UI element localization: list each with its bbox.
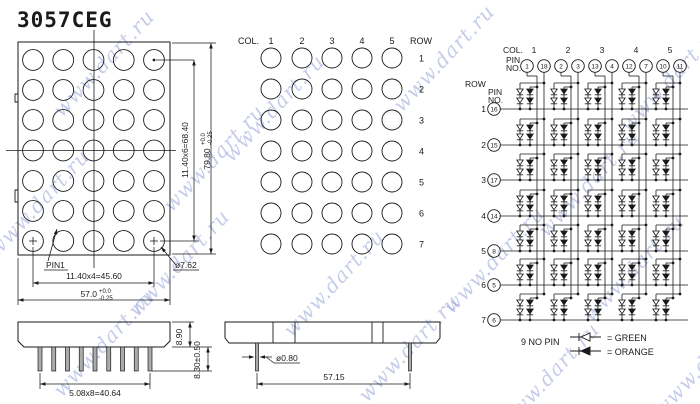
arrowhead: [192, 236, 196, 242]
junction-dot: [536, 262, 539, 265]
led-dot-circle: [382, 141, 402, 161]
green-led-diode-icon: [653, 265, 659, 270]
orange-led-diode-icon: [527, 274, 533, 279]
orange-led-diode-icon: [561, 240, 567, 245]
row-pin-number: 14: [490, 214, 498, 221]
junction-dot: [519, 144, 522, 147]
orange-led-diode-icon: [561, 125, 567, 130]
junction-dot: [655, 250, 658, 253]
junction-dot: [529, 250, 532, 253]
junction-dot: [665, 215, 668, 218]
no-pin-note: 9 NO PIN: [521, 337, 560, 347]
junction-dot: [655, 144, 658, 147]
junction-dot: [519, 215, 522, 218]
arrowhead: [18, 298, 24, 302]
lead-pin: [121, 347, 125, 371]
orange-led-diode-icon: [629, 309, 635, 314]
junction-dot: [519, 108, 522, 111]
green-led-diode-icon: [517, 240, 523, 245]
junction-dot: [570, 86, 573, 89]
junction-dot: [679, 118, 682, 121]
junction-dot: [587, 215, 590, 218]
green-led-diode-icon: [517, 169, 523, 174]
row-pin-number: 6: [492, 318, 496, 325]
led-dot-circle: [83, 201, 104, 222]
col-pin-number: 3: [576, 64, 580, 71]
orange-led-diode-icon: [595, 309, 601, 314]
junction-dot: [631, 108, 634, 111]
junction-dot: [621, 179, 624, 182]
orange-led-diode-icon: [663, 160, 669, 165]
orange-led-diode-icon: [663, 274, 669, 279]
front-face-dimensions: 11.40x6=68.40 79.80 +0.0 -0.25 PIN1 ø7.6…: [46, 122, 214, 302]
led-dot-circle: [83, 231, 104, 252]
row-number: 4: [481, 211, 486, 221]
row-number: 1: [419, 54, 424, 64]
green-led-diode-icon: [517, 205, 523, 210]
orange-led-diode-icon: [527, 231, 533, 236]
orange-led-diode-icon: [527, 240, 533, 245]
lead-pin: [148, 347, 152, 371]
svg-text:-0.25: -0.25: [99, 296, 113, 302]
green-led-diode-icon: [653, 240, 659, 245]
orange-led-diode-icon: [629, 196, 635, 201]
orange-led-diode-icon: [595, 205, 601, 210]
junction-dot: [611, 82, 614, 85]
lead-pin: [256, 343, 259, 371]
junction-dot: [655, 284, 658, 287]
led-dot-circle: [322, 141, 342, 161]
junction-dot: [679, 82, 682, 85]
junction-dot: [153, 59, 156, 62]
green-led-diode-icon: [517, 98, 523, 103]
green-led-diode-icon: [551, 160, 557, 165]
orange-led-diode-icon: [595, 169, 601, 174]
led-dot-circle: [113, 80, 134, 101]
green-led-diode-icon: [619, 169, 625, 174]
green-led-diode-icon: [619, 160, 625, 165]
junction-dot: [597, 144, 600, 147]
junction-dot: [621, 250, 624, 253]
led-dot-circle: [352, 48, 372, 68]
orange-led-diode-icon: [629, 205, 635, 210]
arrowhead: [260, 355, 266, 359]
row-number: 3: [419, 116, 424, 126]
led-dot-circle: [292, 203, 312, 223]
junction-dot: [543, 224, 546, 227]
led-dot-circle: [382, 79, 402, 99]
orange-led-diode-icon: [663, 300, 669, 305]
orange-led-diode-icon: [663, 231, 669, 236]
green-led-diode-icon: [517, 160, 523, 165]
green-led-diode-icon: [517, 265, 523, 270]
orange-led-diode-icon: [629, 98, 635, 103]
junction-dot: [553, 284, 556, 287]
junction-dot: [665, 319, 668, 322]
arrowhead: [40, 382, 46, 386]
junction-dot: [597, 284, 600, 287]
led-dot-circle: [322, 234, 342, 254]
green-led-diode-icon: [517, 196, 523, 201]
led-dot-circle: [53, 171, 74, 192]
junction-dot: [536, 122, 539, 125]
row-number: 5: [481, 246, 486, 256]
junction-dot: [604, 297, 607, 300]
green-led-diode-icon: [653, 169, 659, 174]
legend-orange-diode-icon: [581, 347, 590, 355]
green-led-diode-icon: [653, 125, 659, 130]
junction-dot: [563, 108, 566, 111]
orange-led-diode-icon: [527, 98, 533, 103]
lead-pin: [409, 343, 412, 371]
green-led-diode-icon: [551, 300, 557, 305]
lead-pin: [107, 347, 111, 371]
led-dot-circle: [382, 234, 402, 254]
green-led-diode-icon: [585, 98, 591, 103]
dot-matrix-headers: COL. ROW: [238, 36, 433, 46]
junction-dot: [611, 118, 614, 121]
col-number: 3: [600, 45, 605, 55]
pin-diameter-label: ø0.80: [276, 353, 298, 363]
green-led-diode-icon: [619, 265, 625, 270]
svg-text:-0.25: -0.25: [208, 131, 214, 145]
orange-led-diode-icon: [663, 98, 669, 103]
junction-dot: [638, 122, 641, 125]
orange-led-diode-icon: [561, 205, 567, 210]
col-number: 4: [634, 45, 639, 55]
junction-dot: [611, 153, 614, 156]
arrowhead: [257, 382, 263, 386]
arrowhead: [206, 366, 210, 372]
row-pin-number: 16: [490, 107, 498, 114]
led-dot-circle: [23, 80, 44, 101]
junction-dot: [577, 82, 580, 85]
arrowhead: [33, 281, 39, 285]
pin1-label: PIN1: [46, 260, 65, 270]
green-led-diode-icon: [551, 169, 557, 174]
led-dot-circle: [23, 110, 44, 131]
arrowhead: [188, 322, 192, 328]
led-dot-circle: [261, 203, 281, 223]
junction-dot: [638, 86, 641, 89]
orange-led-diode-icon: [527, 309, 533, 314]
led-dot-circle: [292, 172, 312, 192]
led-dot-circle: [322, 110, 342, 130]
orange-led-diode-icon: [663, 265, 669, 270]
junction-dot: [553, 179, 556, 182]
orange-led-diode-icon: [595, 300, 601, 305]
orange-led-diode-icon: [629, 89, 635, 94]
green-led-diode-icon: [517, 300, 523, 305]
schematic-col-header: COL.: [503, 45, 523, 55]
arrowhead: [206, 347, 210, 353]
lead-pin: [52, 347, 56, 371]
junction-dot: [611, 224, 614, 227]
col-pin-number: 7: [644, 64, 648, 71]
orange-led-diode-icon: [561, 265, 567, 270]
green-led-diode-icon: [653, 98, 659, 103]
led-dot-circle: [261, 48, 281, 68]
led-dot-circle: [144, 171, 165, 192]
junction-dot: [577, 293, 580, 296]
junction-dot: [529, 215, 532, 218]
junction-dot: [553, 319, 556, 322]
green-led-diode-icon: [653, 196, 659, 201]
arrowhead: [209, 43, 213, 49]
junction-dot: [655, 319, 658, 322]
led-dot-circle: [292, 79, 312, 99]
green-led-diode-icon: [653, 134, 659, 139]
green-led-diode-icon: [517, 134, 523, 139]
junction-dot: [611, 293, 614, 296]
junction-dot: [655, 179, 658, 182]
green-led-diode-icon: [551, 309, 557, 314]
junction-dot: [638, 228, 641, 231]
junction-dot: [553, 215, 556, 218]
junction-dot: [604, 262, 607, 265]
junction-dot: [631, 319, 634, 322]
svg-text:79.80: 79.80: [202, 148, 212, 170]
green-led-diode-icon: [585, 196, 591, 201]
row-number: 7: [419, 240, 424, 250]
junction-dot: [655, 215, 658, 218]
led-dot-circle: [113, 171, 134, 192]
orange-led-diode-icon: [629, 300, 635, 305]
green-led-diode-icon: [551, 240, 557, 245]
junction-dot: [536, 193, 539, 196]
orange-led-diode-icon: [663, 134, 669, 139]
schematic-labels: COL. PIN NO. ROW PIN NO. 9 NO PIN = GREE…: [465, 45, 654, 357]
led-dot-circle: [23, 171, 44, 192]
orange-led-diode-icon: [561, 169, 567, 174]
junction-dot: [587, 144, 590, 147]
orange-led-diode-icon: [527, 205, 533, 210]
orange-led-diode-icon: [663, 125, 669, 130]
junction-dot: [587, 179, 590, 182]
green-led-diode-icon: [585, 274, 591, 279]
junction-dot: [638, 297, 641, 300]
arrowhead: [54, 229, 57, 235]
green-led-diode-icon: [585, 309, 591, 314]
col-header: COL.: [238, 36, 259, 46]
junction-dot: [543, 153, 546, 156]
green-led-diode-icon: [619, 196, 625, 201]
junction-dot: [519, 250, 522, 253]
junction-dot: [604, 228, 607, 231]
col-pin-number: 12: [625, 64, 633, 71]
junction-dot: [563, 179, 566, 182]
junction-dot: [645, 258, 648, 261]
legend-orange-label: = ORANGE: [607, 347, 654, 357]
row-number: 5: [419, 178, 424, 188]
col-pin-number: 10: [659, 64, 667, 71]
junction-dot: [645, 293, 648, 296]
led-dot-circle: [322, 203, 342, 223]
green-led-diode-icon: [585, 125, 591, 130]
led-dot-circle: [83, 80, 104, 101]
lead-pin: [93, 347, 97, 371]
green-led-diode-icon: [653, 300, 659, 305]
junction-dot: [570, 297, 573, 300]
green-led-diode-icon: [653, 309, 659, 314]
junction-dot: [597, 319, 600, 322]
lead-pin: [38, 347, 42, 371]
svg-text:57.0: 57.0: [80, 289, 97, 299]
orange-led-diode-icon: [527, 265, 533, 270]
green-led-diode-icon: [585, 89, 591, 94]
orange-led-diode-icon: [663, 169, 669, 174]
orange-led-diode-icon: [595, 125, 601, 130]
dot-matrix-diagram: 123451234567: [261, 36, 424, 254]
green-led-diode-icon: [551, 134, 557, 139]
arrowhead: [149, 281, 155, 285]
junction-dot: [604, 86, 607, 89]
green-led-diode-icon: [619, 205, 625, 210]
led-dot-circle: [352, 141, 372, 161]
dim-pin-length: 8.30±0.50: [192, 341, 202, 379]
col-number: 1: [532, 45, 537, 55]
datasheet-page: www.dart.ruwww.dart.ruwww.dart.ruwww.dar…: [0, 0, 700, 404]
junction-dot: [679, 224, 682, 227]
col-pin-number: 13: [591, 64, 599, 71]
green-led-diode-icon: [619, 231, 625, 236]
green-led-diode-icon: [551, 125, 557, 130]
orange-led-diode-icon: [663, 309, 669, 314]
green-led-diode-icon: [551, 98, 557, 103]
orange-led-diode-icon: [527, 160, 533, 165]
junction-dot: [577, 118, 580, 121]
side-view-dimensions: ø0.80 57.15: [276, 353, 345, 382]
junction-dot: [638, 262, 641, 265]
orange-led-diode-icon: [595, 134, 601, 139]
junction-dot: [645, 118, 648, 121]
green-led-diode-icon: [653, 89, 659, 94]
orange-led-diode-icon: [561, 160, 567, 165]
led-dot-circle: [113, 201, 134, 222]
led-dot-circle: [322, 79, 342, 99]
part-number: 3057CEG: [17, 8, 113, 32]
lead-pin: [79, 347, 83, 371]
led-dot-circle: [53, 110, 74, 131]
led-dot-circle: [53, 50, 74, 71]
row-header: ROW: [410, 36, 433, 46]
junction-dot: [631, 144, 634, 147]
junction-dot: [665, 284, 668, 287]
junction-dot: [611, 189, 614, 192]
junction-dot: [570, 157, 573, 160]
led-dot-circle: [382, 110, 402, 130]
green-led-diode-icon: [619, 240, 625, 245]
led-dot-circle: [261, 141, 281, 161]
junction-dot: [672, 193, 675, 196]
green-led-diode-icon: [619, 125, 625, 130]
row-number: 7: [481, 315, 486, 325]
led-dot-circle: [83, 171, 104, 192]
row-number: 2: [481, 140, 486, 150]
row-number: 1: [481, 104, 486, 114]
row-pin-number: 17: [490, 178, 498, 185]
led-dot-circle: [292, 48, 312, 68]
arrowhead: [145, 382, 151, 386]
led-dot-circle: [292, 234, 312, 254]
dim-col-pitch: 11.40x4=45.60: [66, 271, 122, 281]
col-number: 2: [299, 36, 304, 46]
junction-dot: [621, 319, 624, 322]
junction-dot: [665, 108, 668, 111]
orange-led-diode-icon: [527, 196, 533, 201]
arrowhead: [192, 60, 196, 66]
junction-dot: [543, 189, 546, 192]
green-led-diode-icon: [517, 309, 523, 314]
orange-led-diode-icon: [561, 196, 567, 201]
green-led-diode-icon: [619, 300, 625, 305]
orange-led-diode-icon: [595, 98, 601, 103]
junction-dot: [645, 153, 648, 156]
green-led-diode-icon: [585, 205, 591, 210]
junction-dot: [597, 250, 600, 253]
green-led-diode-icon: [585, 240, 591, 245]
junction-dot: [529, 144, 532, 147]
green-led-diode-icon: [551, 265, 557, 270]
junction-dot: [631, 215, 634, 218]
led-dot-circle: [23, 201, 44, 222]
orange-led-diode-icon: [595, 265, 601, 270]
row-number: 6: [419, 209, 424, 219]
dim-pin-span: 57.15: [323, 372, 345, 382]
orange-led-diode-icon: [527, 134, 533, 139]
orange-led-diode-icon: [663, 196, 669, 201]
junction-dot: [587, 319, 590, 322]
schematic-row-pin-label: NO.: [488, 95, 503, 105]
orange-led-diode-icon: [561, 231, 567, 236]
led-dot-circle: [144, 80, 165, 101]
orange-led-diode-icon: [595, 89, 601, 94]
orange-led-diode-icon: [629, 274, 635, 279]
junction-dot: [621, 108, 624, 111]
led-dot-circle: [292, 141, 312, 161]
orange-led-diode-icon: [595, 231, 601, 236]
junction-dot: [563, 284, 566, 287]
green-led-diode-icon: [551, 196, 557, 201]
junction-dot: [553, 250, 556, 253]
orange-led-diode-icon: [561, 274, 567, 279]
junction-dot: [519, 284, 522, 287]
col-number: 2: [566, 45, 571, 55]
green-led-diode-icon: [551, 231, 557, 236]
green-led-diode-icon: [517, 274, 523, 279]
junction-dot: [672, 262, 675, 265]
junction-dot: [679, 258, 682, 261]
junction-dot: [570, 262, 573, 265]
orange-led-diode-icon: [527, 300, 533, 305]
led-dot-circle: [113, 231, 134, 252]
led-dot-circle: [53, 201, 74, 222]
green-led-diode-icon: [517, 125, 523, 130]
junction-dot: [621, 144, 624, 147]
junction-dot: [536, 157, 539, 160]
led-dot-circle: [83, 50, 104, 71]
junction-dot: [577, 153, 580, 156]
led-dot-circle: [352, 172, 372, 192]
leader-line: [266, 357, 274, 363]
junction-dot: [672, 86, 675, 89]
orange-led-diode-icon: [629, 160, 635, 165]
led-dot-circle: [144, 201, 165, 222]
col-pin-number: 4: [610, 64, 614, 71]
orange-led-diode-icon: [561, 89, 567, 94]
junction-dot: [587, 284, 590, 287]
dot-diameter-label: ø7.62: [175, 260, 197, 270]
